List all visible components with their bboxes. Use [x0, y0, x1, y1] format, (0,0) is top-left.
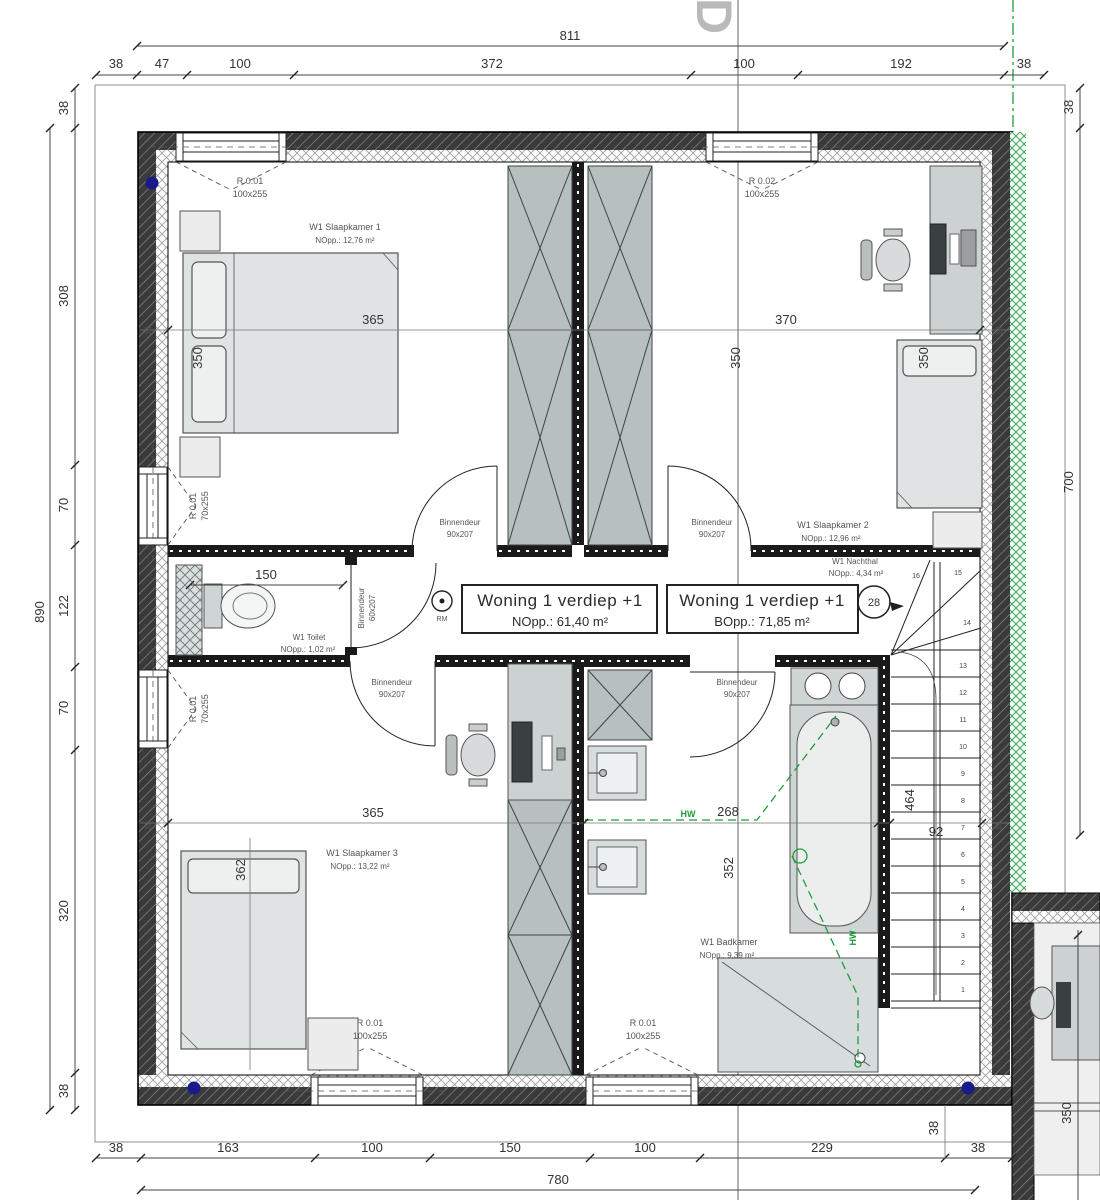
toilet-tank — [204, 584, 222, 628]
svg-text:362: 362 — [233, 859, 248, 881]
svg-text:268: 268 — [717, 804, 739, 819]
wardrobe-block — [588, 166, 652, 330]
svg-text:Binnendeur: Binnendeur — [717, 678, 758, 687]
svg-text:192: 192 — [890, 56, 912, 71]
dims-left: 890 38 308 70 122 70 320 38 — [32, 84, 79, 1114]
duct-shaft — [176, 565, 202, 655]
svg-text:38: 38 — [56, 101, 71, 115]
svg-text:3: 3 — [961, 933, 965, 940]
svg-text:100x255: 100x255 — [745, 189, 780, 199]
wardrobe-block — [508, 800, 572, 935]
svg-text:4: 4 — [961, 906, 965, 913]
svg-text:BOpp.: 71,85 m²: BOpp.: 71,85 m² — [714, 614, 810, 629]
svg-text:100: 100 — [733, 56, 755, 71]
wardrobe-block — [588, 330, 652, 545]
hw-label-2: HW — [848, 930, 858, 945]
svg-text:100x255: 100x255 — [626, 1031, 661, 1041]
svg-text:350: 350 — [728, 347, 743, 369]
svg-text:38: 38 — [109, 56, 123, 71]
svg-text:70x255: 70x255 — [200, 694, 210, 724]
monitor-icon — [930, 224, 946, 274]
svg-text:R 0.01: R 0.01 — [188, 696, 198, 723]
floorplan-page: D — [0, 0, 1100, 1200]
svg-text:12: 12 — [959, 690, 967, 697]
svg-text:890: 890 — [32, 601, 47, 623]
hw-label-1: HW — [681, 809, 696, 819]
svg-text:90x207: 90x207 — [724, 690, 751, 699]
svg-text:Binnendeur: Binnendeur — [357, 587, 366, 628]
keyboard-icon — [542, 736, 552, 770]
bathtub — [790, 705, 878, 933]
svg-text:90x207: 90x207 — [699, 530, 726, 539]
svg-text:R 0.02: R 0.02 — [749, 176, 776, 186]
office-chair — [446, 724, 495, 786]
smoke-detector: RM — [432, 591, 452, 623]
svg-text:100x255: 100x255 — [233, 189, 268, 199]
party-wall-green-strip — [1010, 132, 1026, 893]
nightstand — [933, 512, 982, 548]
svg-text:R 0.01: R 0.01 — [357, 1018, 384, 1028]
handrail — [934, 562, 940, 1001]
washbasin — [588, 840, 646, 894]
monitor-icon — [512, 722, 532, 782]
svg-text:6: 6 — [961, 852, 965, 859]
svg-text:100x255: 100x255 — [353, 1031, 388, 1041]
watermark-letter: D — [686, 0, 742, 34]
svg-text:308: 308 — [56, 285, 71, 307]
stair-arrow — [890, 602, 904, 611]
svg-text:150: 150 — [499, 1140, 521, 1155]
svg-text:9: 9 — [961, 771, 965, 778]
svg-text:38: 38 — [144, 821, 153, 830]
svg-text:100: 100 — [361, 1140, 383, 1155]
adjacent-unit: 350 — [1012, 893, 1100, 1200]
nightstand — [180, 437, 220, 477]
svg-text:W1 Badkamer: W1 Badkamer — [700, 937, 757, 947]
svg-text:350: 350 — [916, 347, 931, 369]
dims-right: 38 700 — [1061, 84, 1084, 839]
shower — [718, 958, 878, 1072]
keyboard-icon — [950, 234, 959, 264]
svg-text:Binnendeur: Binnendeur — [372, 678, 413, 687]
svg-text:NOpp.: 12,76 m²: NOpp.: 12,76 m² — [315, 236, 374, 245]
svg-text:2: 2 — [961, 960, 965, 967]
svg-text:38: 38 — [971, 1140, 985, 1155]
svg-text:W1 Slaapkamer 2: W1 Slaapkamer 2 — [797, 520, 869, 530]
svg-text:92: 92 — [929, 824, 943, 839]
mouse-icon — [557, 748, 565, 760]
svg-text:NOpp.: 9,39 m²: NOpp.: 9,39 m² — [700, 951, 755, 960]
svg-text:38: 38 — [144, 326, 153, 335]
wardrobe-block — [508, 166, 572, 330]
svg-text:350: 350 — [190, 347, 205, 369]
svg-text:90x207: 90x207 — [447, 530, 474, 539]
svg-text:R 0.01: R 0.01 — [188, 493, 198, 520]
svg-text:150: 150 — [255, 567, 277, 582]
svg-text:7: 7 — [961, 825, 965, 832]
svg-text:Woning 1 verdiep +1: Woning 1 verdiep +1 — [477, 591, 643, 610]
svg-text:W1 Toilet: W1 Toilet — [293, 633, 327, 642]
svg-text:15: 15 — [954, 570, 962, 577]
svg-text:90x207: 90x207 — [379, 690, 406, 699]
svg-text:Binnendeur: Binnendeur — [440, 518, 481, 527]
svg-text:60x207: 60x207 — [368, 594, 377, 621]
svg-text:464: 464 — [902, 789, 917, 811]
svg-text:70: 70 — [56, 498, 71, 512]
svg-text:229: 229 — [811, 1140, 833, 1155]
svg-text:38: 38 — [1061, 100, 1076, 114]
nightstand — [180, 211, 220, 251]
svg-text:5: 5 — [961, 879, 965, 886]
svg-text:W1 Slaapkamer 1: W1 Slaapkamer 1 — [309, 222, 381, 232]
wardrobe-block — [508, 935, 572, 1075]
adj-chair — [1030, 987, 1054, 1019]
wardrobe-block — [508, 330, 572, 545]
vanity-counter — [791, 668, 878, 705]
svg-text:Binnendeur: Binnendeur — [692, 518, 733, 527]
bench — [308, 1018, 358, 1070]
svg-text:350: 350 — [1059, 1102, 1074, 1124]
svg-text:47: 47 — [155, 56, 169, 71]
monitor-icon — [1056, 982, 1071, 1028]
svg-text:38: 38 — [995, 326, 1004, 335]
winder-treads — [891, 560, 981, 655]
svg-text:38: 38 — [56, 1084, 71, 1098]
svg-text:365: 365 — [362, 805, 384, 820]
office-chair — [861, 229, 910, 291]
svg-text:W1 Slaapkamer 3: W1 Slaapkamer 3 — [326, 848, 398, 858]
svg-text:811: 811 — [560, 28, 581, 43]
svg-text:70x255: 70x255 — [200, 491, 210, 521]
door-bedroom3 — [350, 661, 435, 746]
bed-1 — [183, 253, 398, 433]
svg-text:365: 365 — [362, 312, 384, 327]
svg-text:780: 780 — [547, 1172, 569, 1187]
floorplan-drawing: D — [0, 0, 1100, 1200]
wardrobe-block — [588, 670, 652, 740]
svg-text:NOpp.: 4,34 m²: NOpp.: 4,34 m² — [829, 569, 884, 578]
svg-text:163: 163 — [217, 1140, 239, 1155]
bed-2 — [897, 340, 982, 508]
svg-text:38: 38 — [109, 1140, 123, 1155]
dims-bottom: 38 163 100 150 100 229 38 780 38 — [92, 1105, 1016, 1194]
svg-text:R 0.01: R 0.01 — [630, 1018, 657, 1028]
svg-text:10: 10 — [959, 744, 967, 751]
svg-text:NOpp.: 61,40 m²: NOpp.: 61,40 m² — [512, 614, 609, 629]
svg-text:700: 700 — [1061, 471, 1076, 493]
info-boxes: Woning 1 verdiep +1 NOpp.: 61,40 m² Woni… — [462, 585, 858, 633]
svg-text:RM: RM — [437, 616, 448, 623]
svg-text:NOpp.: 1,02 m²: NOpp.: 1,02 m² — [281, 645, 336, 654]
svg-text:320: 320 — [56, 900, 71, 922]
svg-text:70: 70 — [56, 701, 71, 715]
stair-circle-label: 28 — [868, 597, 880, 609]
svg-text:372: 372 — [481, 56, 503, 71]
svg-text:11: 11 — [959, 717, 966, 724]
svg-text:38: 38 — [926, 1121, 941, 1135]
svg-text:W1 Nachthal: W1 Nachthal — [832, 557, 878, 566]
dims-top: 811 38 47 100 372 100 192 38 — [92, 28, 1048, 79]
svg-text:14: 14 — [963, 620, 971, 627]
svg-text:8: 8 — [961, 798, 965, 805]
svg-text:122: 122 — [56, 595, 71, 617]
svg-text:100: 100 — [634, 1140, 656, 1155]
svg-text:370: 370 — [775, 312, 797, 327]
svg-text:38: 38 — [995, 821, 1004, 830]
svg-text:NOpp.: 12,96 m²: NOpp.: 12,96 m² — [801, 534, 860, 543]
svg-text:352: 352 — [721, 857, 736, 879]
svg-text:Woning 1 verdiep +1: Woning 1 verdiep +1 — [679, 591, 845, 610]
svg-text:R 0.01: R 0.01 — [237, 176, 264, 186]
washbasin — [588, 746, 646, 800]
printer-icon — [961, 230, 976, 266]
svg-text:13: 13 — [959, 663, 967, 670]
svg-text:38: 38 — [1017, 56, 1031, 71]
svg-text:1: 1 — [961, 987, 965, 994]
svg-text:NOpp.: 13,22 m²: NOpp.: 13,22 m² — [330, 862, 389, 871]
svg-text:100: 100 — [229, 56, 251, 71]
svg-text:16: 16 — [912, 573, 920, 580]
